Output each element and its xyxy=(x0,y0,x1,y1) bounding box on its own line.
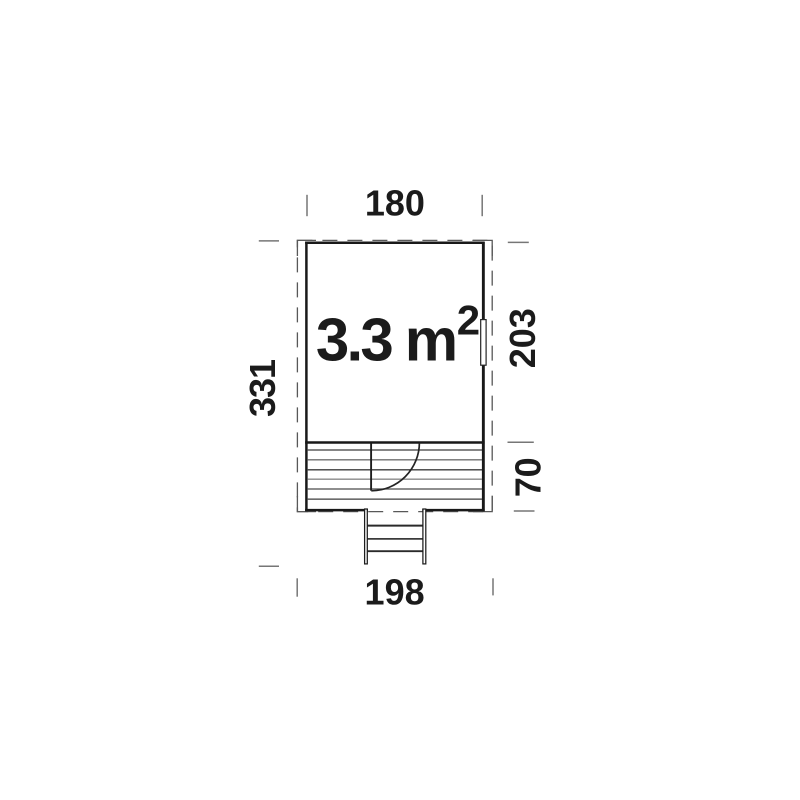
svg-text:331: 331 xyxy=(242,359,283,417)
svg-text:70: 70 xyxy=(507,458,548,497)
svg-text:203: 203 xyxy=(502,308,543,368)
svg-text:3.3 m: 3.3 m xyxy=(316,306,455,373)
svg-text:198: 198 xyxy=(365,572,425,613)
svg-text:2: 2 xyxy=(457,296,480,343)
svg-text:180: 180 xyxy=(365,183,425,224)
